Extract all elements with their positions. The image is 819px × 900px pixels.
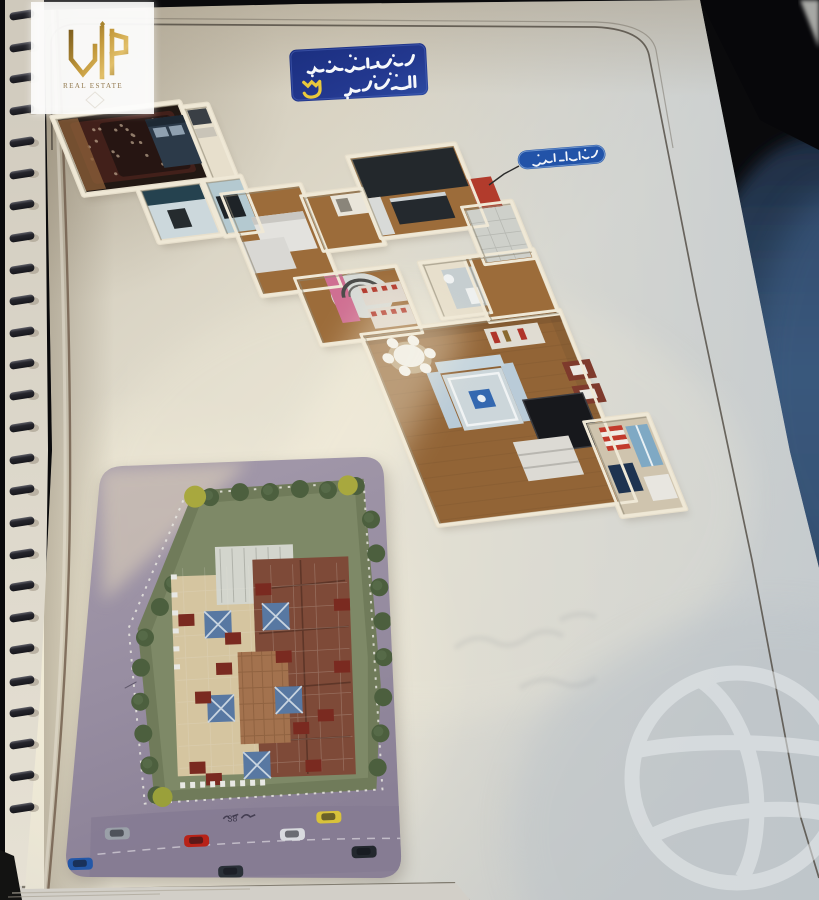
svg-text:REAL ESTATE: REAL ESTATE: [63, 82, 123, 90]
svg-text:38: 38: [227, 813, 237, 823]
